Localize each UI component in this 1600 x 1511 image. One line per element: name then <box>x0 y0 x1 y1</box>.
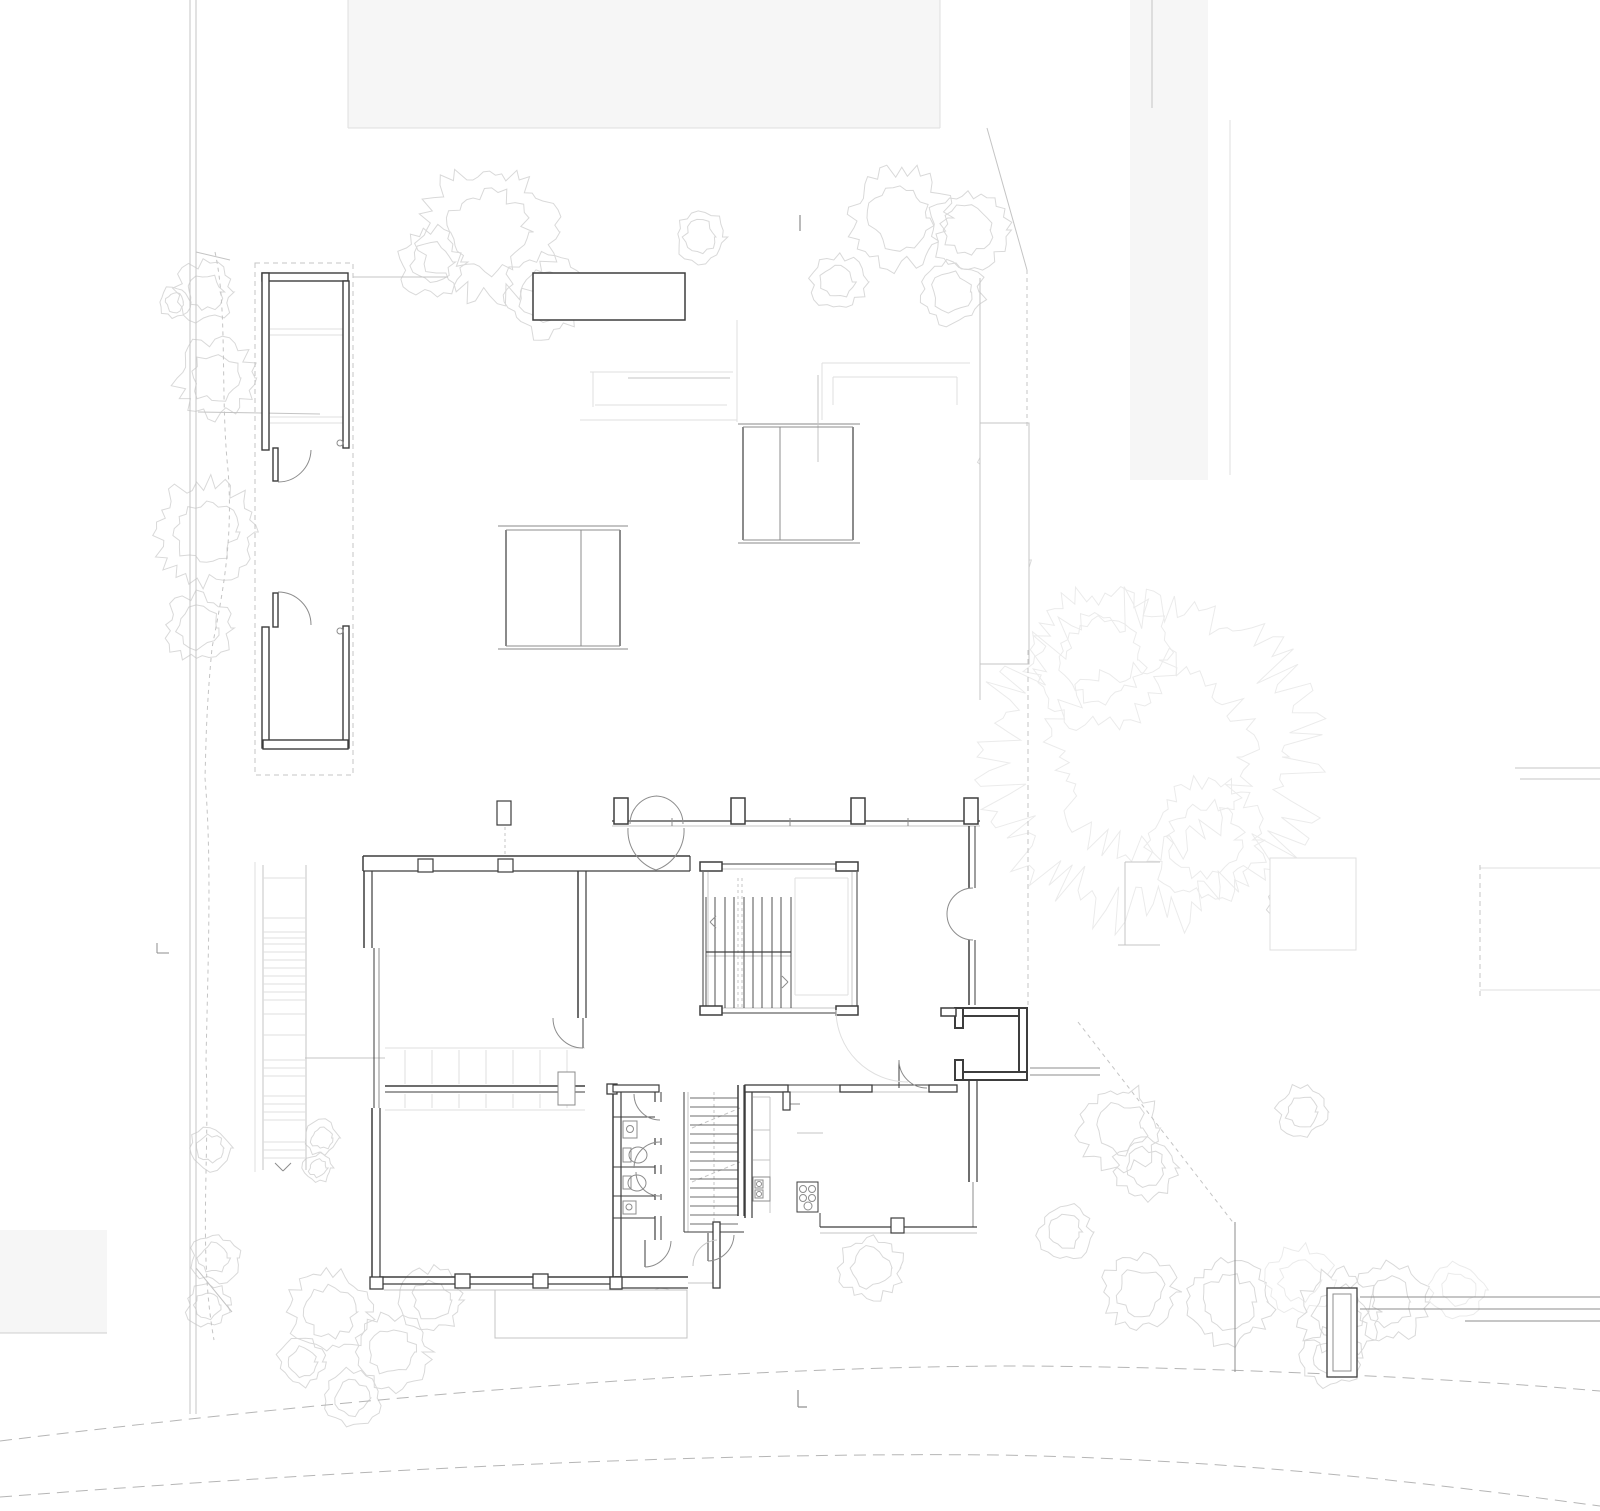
door-swing-arc <box>947 914 973 940</box>
tree-symbol <box>355 1312 434 1393</box>
plan-wall-rect <box>263 740 348 749</box>
plan-wall-rect <box>836 1006 858 1015</box>
plan-wall-rect <box>964 798 978 824</box>
building-walls-layer <box>157 215 1600 1407</box>
plan-wall-rect <box>700 1006 722 1015</box>
tree-symbol-inner <box>867 186 934 251</box>
tree-symbol-inner <box>1116 1270 1165 1317</box>
plan-wall-rect <box>745 1085 788 1092</box>
site-wash <box>1130 0 1208 480</box>
plan-wall-rect <box>929 1085 957 1092</box>
door-swing-arc <box>656 828 684 870</box>
plan-wall-rect <box>495 1290 687 1338</box>
plan-wall-rect <box>455 1274 470 1288</box>
plan-wall-rect <box>498 859 513 872</box>
tree-symbol <box>1351 1260 1430 1341</box>
plan-line <box>987 128 1027 270</box>
plan-line <box>782 982 788 988</box>
plan-wall-rect <box>273 448 278 481</box>
plan-wall-rect <box>731 798 745 824</box>
door-swing-arc <box>634 1094 660 1120</box>
plan-wall-rect <box>533 273 685 320</box>
door-swing-arc <box>656 796 683 824</box>
tree-symbol <box>678 211 728 265</box>
plan-wall-rect <box>840 1085 872 1092</box>
plan-wall-rect <box>851 798 865 824</box>
fixture-circle <box>337 440 343 446</box>
tree-symbol <box>1264 1243 1336 1314</box>
tree-symbol-inner <box>932 271 972 313</box>
tree-symbol-inner <box>335 1379 371 1416</box>
plan-wall-rect <box>343 626 349 748</box>
plan-wall-rect <box>497 801 511 825</box>
tree-symbol <box>920 259 986 326</box>
plan-line <box>275 1163 283 1171</box>
door-swing-arc <box>645 1241 671 1267</box>
plan-wall-rect <box>273 593 278 627</box>
site-wash-layer <box>0 0 1208 1333</box>
plan-line <box>198 412 320 414</box>
plan-wall-rect <box>418 859 433 872</box>
site-plan-page <box>0 0 1600 1511</box>
tree-symbol <box>1102 1252 1182 1330</box>
plan-wall-rect <box>533 1274 548 1288</box>
tree-symbol-inner <box>1203 1274 1256 1331</box>
tree-symbol-inner <box>370 1330 417 1374</box>
plan-wall-rect <box>955 1008 1027 1016</box>
tree-symbol-inner <box>820 265 856 297</box>
tree-symbol <box>185 1284 231 1328</box>
dashed-site-line <box>205 252 229 1340</box>
plan-wall-rect <box>783 1092 790 1110</box>
plan-wall-rect <box>262 273 269 450</box>
tree-symbol-inner <box>410 242 456 283</box>
tree-symbol <box>398 224 468 297</box>
tree-symbol-inner <box>1097 1103 1148 1157</box>
tree-symbol <box>809 253 869 307</box>
dashed-site-line <box>738 878 742 1008</box>
plan-wall-rect <box>613 1085 659 1092</box>
tree-symbol-inner <box>303 1284 357 1339</box>
plan-wall-rect <box>891 1218 904 1233</box>
plan-wall-rect <box>980 423 1029 664</box>
tree-symbol <box>325 1367 382 1427</box>
tree-symbol <box>929 191 1012 270</box>
plan-wall-rect <box>1019 1008 1027 1080</box>
dashed-site-line <box>0 1455 1600 1506</box>
tree-symbol-inner <box>197 1134 224 1163</box>
site-wash <box>0 1230 107 1333</box>
tree-symbol-inner <box>446 188 533 277</box>
door-swing-arc <box>899 1060 927 1088</box>
toilet-symbol <box>629 1147 647 1163</box>
plan-wall-rect <box>262 627 269 748</box>
tree-symbol-inner <box>850 1246 892 1290</box>
plan-wall-rect <box>623 1148 631 1162</box>
tree-symbol-inner <box>165 293 183 313</box>
tree-symbol <box>165 590 234 660</box>
tree-symbol-inner <box>1442 1273 1476 1306</box>
tree-symbol-inner <box>188 275 225 310</box>
dashed-site-line <box>255 263 353 775</box>
tree-symbol <box>1023 587 1177 731</box>
fixture-circle <box>337 628 343 634</box>
door-swing-arc <box>628 828 656 870</box>
doors-fixtures-layer <box>278 440 973 1267</box>
tree-symbol-inner <box>943 205 993 255</box>
plan-wall-rect <box>370 1277 383 1289</box>
door-swing-arc <box>947 888 973 914</box>
door-swing-arc <box>836 1010 908 1082</box>
tree-symbol-inner <box>1043 648 1259 861</box>
tree-symbol-inner <box>682 219 716 253</box>
tree-symbol <box>1275 1085 1329 1138</box>
plan-wall-rect <box>558 1072 575 1105</box>
tree-symbol <box>1428 1261 1489 1319</box>
plan-wall-rect <box>623 1201 636 1214</box>
door-swing-arc <box>553 1018 583 1048</box>
site-wash <box>348 0 940 128</box>
plan-line <box>782 976 788 982</box>
door-swing-arc <box>278 450 311 482</box>
plan-wall-rect <box>343 281 349 448</box>
plan-wall-rect <box>623 1121 637 1138</box>
plan-wall-rect <box>836 862 858 871</box>
plan-wall-rect <box>700 862 722 871</box>
plan-wall-rect <box>614 798 628 824</box>
plan-line <box>196 252 230 260</box>
tree-symbol-inner <box>308 1159 328 1178</box>
tree-symbol-inner <box>192 355 241 402</box>
tree-symbol <box>1036 1204 1094 1259</box>
tree-symbol <box>173 259 235 323</box>
tree-symbol-inner <box>1059 616 1147 706</box>
plan-line <box>283 1163 291 1171</box>
tree-symbol <box>1075 1085 1161 1172</box>
tree-symbol <box>302 1152 334 1182</box>
plan-line <box>196 1268 232 1312</box>
door-swing-arc <box>278 592 311 625</box>
tree-symbol <box>837 1235 903 1301</box>
plan-wall-rect <box>713 1222 720 1288</box>
plan-wall-rect <box>941 1008 956 1016</box>
tree-symbol-inner <box>310 1127 333 1149</box>
tree-symbol-inner <box>1368 1276 1410 1328</box>
plan-wall-rect <box>1270 858 1356 950</box>
plan-wall-rect <box>610 1277 622 1289</box>
tree-symbol-inner <box>288 1346 318 1378</box>
dashed-site-line <box>0 1366 1600 1441</box>
tree-symbol-inner <box>1277 1260 1321 1302</box>
tree-symbol <box>171 336 257 422</box>
tree-symbol-inner <box>1285 1097 1318 1127</box>
tree-symbol <box>1187 1258 1276 1348</box>
tree-symbol <box>153 475 259 589</box>
site-floor-plan-drawing <box>0 0 1600 1511</box>
tree-symbol-inner <box>1049 1214 1083 1248</box>
plan-wall-rect <box>262 273 348 281</box>
tree-symbol <box>305 1119 340 1155</box>
plan-wall-rect <box>955 1072 1027 1080</box>
tree-symbol-inner <box>197 1242 231 1272</box>
plan-wall-rect <box>955 1060 963 1080</box>
door-swing-arc <box>630 796 657 824</box>
tree-symbol <box>1112 1137 1179 1203</box>
door-swing-arc <box>708 1235 734 1261</box>
plan-wall-rect <box>1333 1294 1351 1371</box>
tree-symbol-inner <box>193 1293 221 1320</box>
tree-symbol-inner <box>412 1280 452 1319</box>
